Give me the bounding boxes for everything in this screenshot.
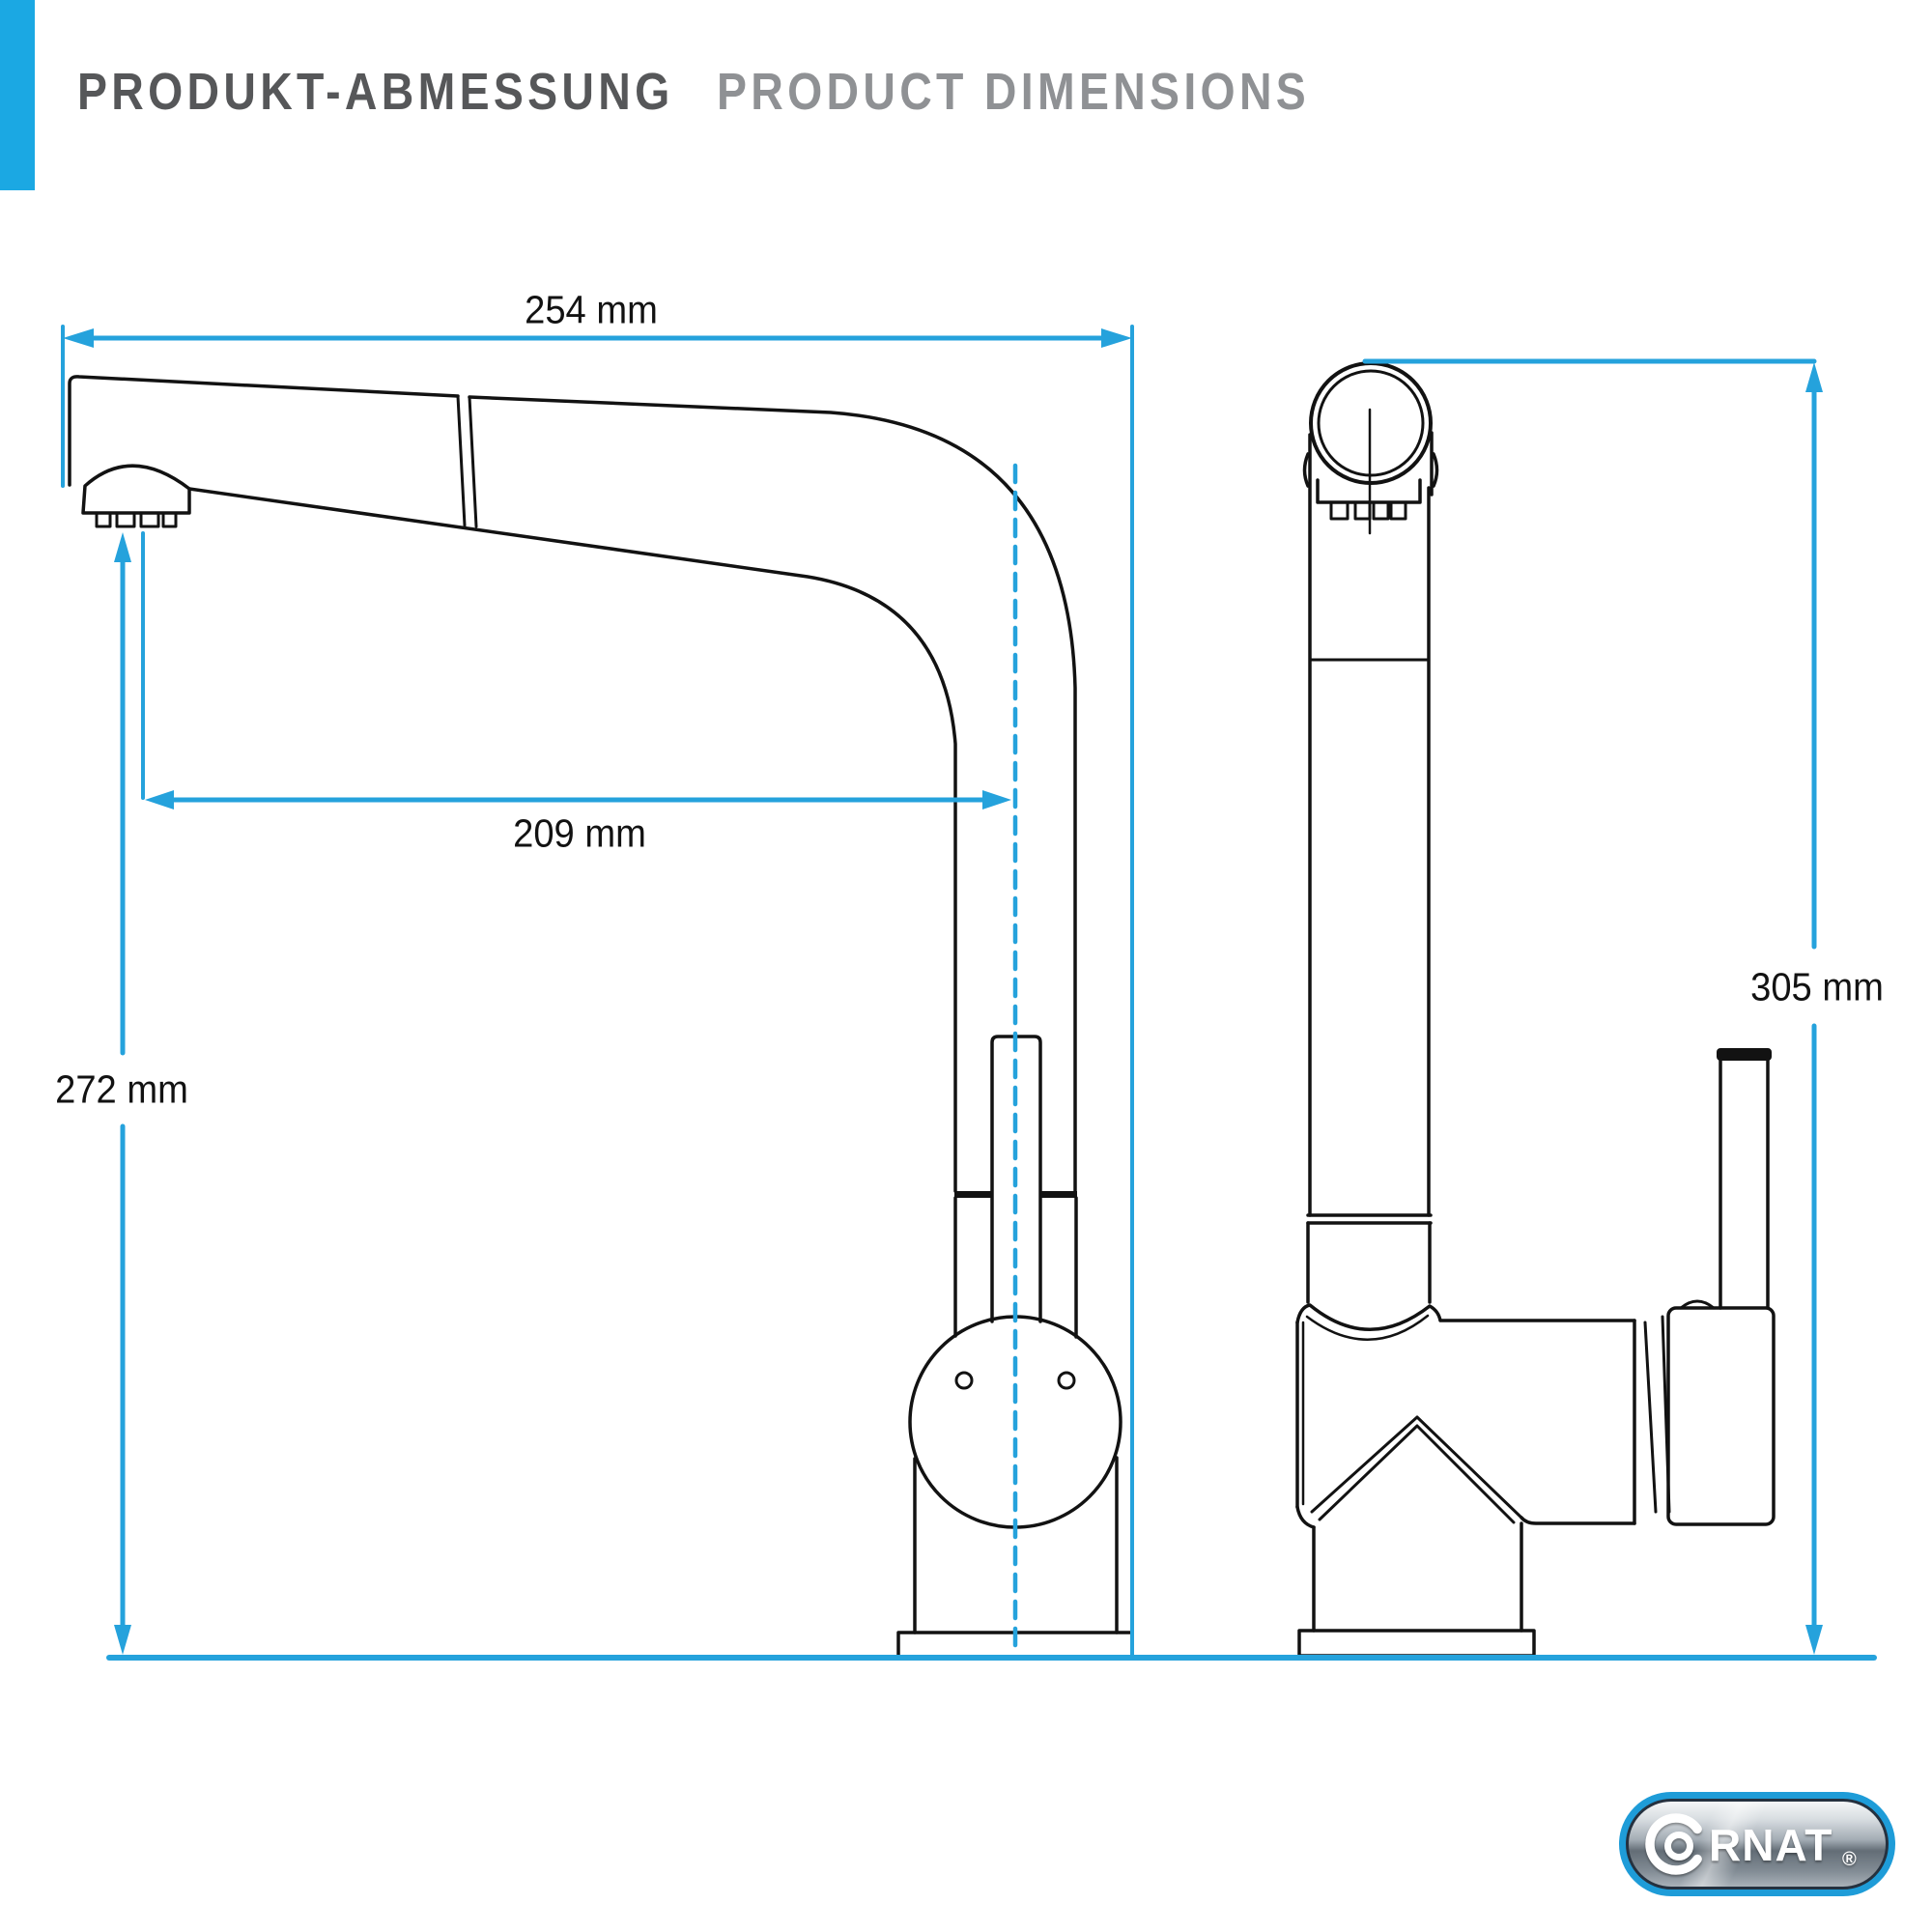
aerator-teeth-side: [97, 513, 176, 526]
arrow-305-bottom: [1805, 1625, 1823, 1655]
ball-joint-hole-right: [1059, 1373, 1074, 1388]
arrow-272-bottom: [114, 1625, 131, 1655]
spray-head: [83, 466, 189, 513]
cornat-logo-plate: RNAT ®: [1629, 1802, 1886, 1887]
dimension-254: [63, 327, 1132, 1654]
aerator-teeth-front: [1331, 502, 1406, 519]
joint-lines-front: [1308, 1215, 1431, 1223]
pedestal-front: [1314, 1523, 1521, 1631]
faucet-side-view: [70, 377, 1132, 1658]
joint-bar-right: [1039, 1191, 1077, 1198]
arrow-254-left: [63, 328, 94, 348]
pipe-front: [1310, 435, 1429, 1215]
spout-top-outline: [70, 377, 1075, 1191]
base-plate-front: [1299, 1631, 1534, 1656]
handle-lever-cap: [1717, 1048, 1772, 1061]
product-dimensions-page: PRODUKT-ABMESSUNG PRODUCT DIMENSIONS: [0, 0, 1932, 1932]
body-v-shape: [1312, 1417, 1521, 1522]
body-bottom-left-curve: [1297, 1507, 1314, 1527]
spout-break-lines: [458, 396, 476, 526]
dimension-label-305: 305 mm: [1750, 965, 1884, 1010]
faucet-front-view: [1297, 363, 1774, 1656]
ball-joint-hole-left: [956, 1373, 972, 1388]
arrow-272-top: [114, 532, 131, 562]
cornat-o-ring-icon: [1668, 1835, 1690, 1858]
handle-base-block: [1668, 1308, 1774, 1524]
dimension-label-254: 254 mm: [525, 288, 658, 333]
registered-trademark-icon: ®: [1842, 1849, 1857, 1870]
joint-bar-left: [954, 1191, 993, 1198]
collar-front: [1308, 1223, 1430, 1302]
body-bottom-edge: [1521, 1518, 1634, 1523]
arrow-209-right: [982, 790, 1011, 810]
dimension-label-209: 209 mm: [513, 811, 646, 857]
cornat-logo-text: RNAT: [1709, 1820, 1833, 1870]
body-saddle-curve: [1297, 1305, 1634, 1329]
handle-lever-front: [1720, 1060, 1768, 1308]
dimension-label-272: 272 mm: [55, 1067, 188, 1113]
arrow-254-right: [1101, 328, 1132, 348]
arrow-209-left: [145, 790, 174, 810]
cornat-logo: RNAT ®: [1619, 1792, 1895, 1896]
dimension-209: [143, 533, 1011, 810]
cartridge-lines: [1645, 1317, 1669, 1512]
arrow-305-top: [1805, 362, 1823, 392]
dimension-drawing: [0, 0, 1932, 1932]
cornat-logo-mark: RNAT ®: [1643, 1805, 1871, 1883]
